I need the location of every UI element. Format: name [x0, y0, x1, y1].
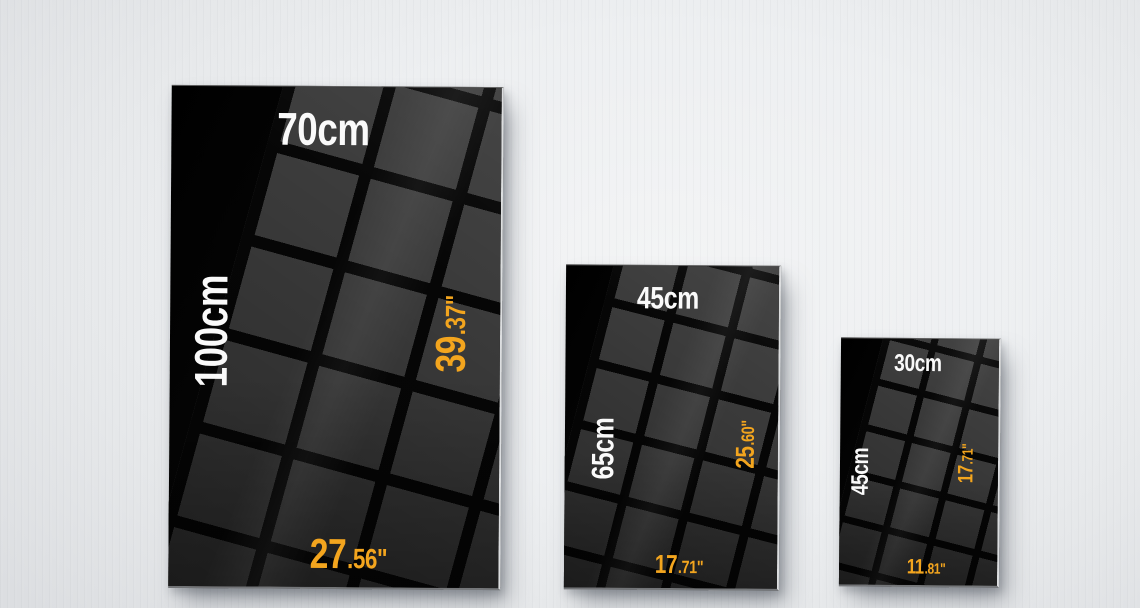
height-cm-value: 45cm [847, 448, 874, 496]
width-inch-label: 17.71" [655, 551, 704, 577]
wall-background: 70cm 100cm 39.37" 27.56" 45cm 65cm 25.60… [0, 0, 1140, 608]
width-cm-label: 30cm [894, 352, 942, 376]
poster-65x45: 45cm 65cm 25.60" 17.71" [564, 264, 781, 590]
height-cm-label: 65cm [587, 417, 618, 479]
poster-100x70: 70cm 100cm 39.37" 27.56" [168, 85, 504, 590]
height-inch-label: 25.60" [732, 420, 758, 469]
height-cm-value: 100cm [185, 275, 238, 388]
width-inch-label: 27.56" [310, 533, 388, 576]
width-cm-label: 45cm [637, 282, 699, 313]
width-cm-value: 30cm [894, 350, 942, 377]
width-inch-label: 11.81" [907, 556, 946, 577]
height-inch-label: 39.37" [430, 295, 473, 373]
height-cm-value: 65cm [585, 417, 620, 479]
height-inch-label: 17.71" [955, 444, 976, 484]
poster-45x30: 30cm 45cm 17.71" 11.81" [839, 337, 1001, 587]
width-cm-value: 45cm [637, 280, 699, 315]
height-cm-label: 45cm [849, 448, 873, 496]
width-cm-value: 70cm [277, 103, 370, 156]
width-cm-label: 70cm [277, 106, 370, 153]
height-cm-label: 100cm [188, 275, 235, 388]
